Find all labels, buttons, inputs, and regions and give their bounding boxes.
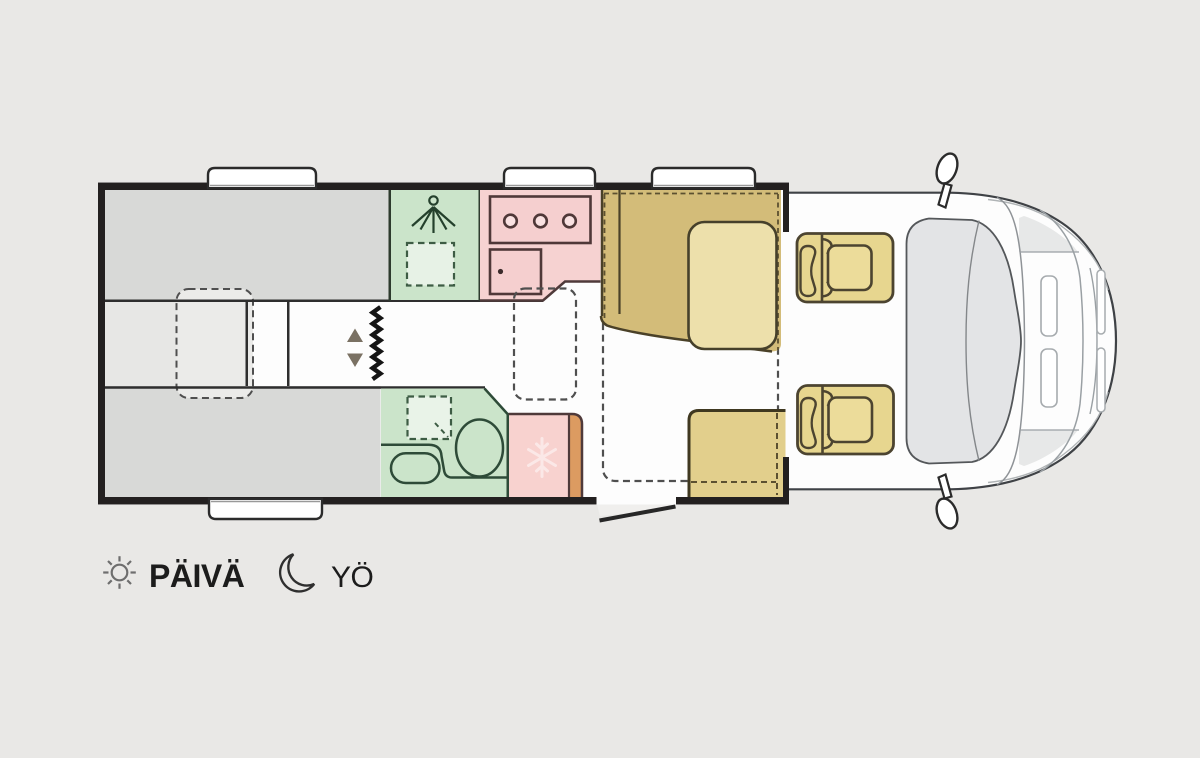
svg-text:PÄIVÄ: PÄIVÄ [149,558,245,594]
svg-text:YÖ: YÖ [331,561,373,594]
